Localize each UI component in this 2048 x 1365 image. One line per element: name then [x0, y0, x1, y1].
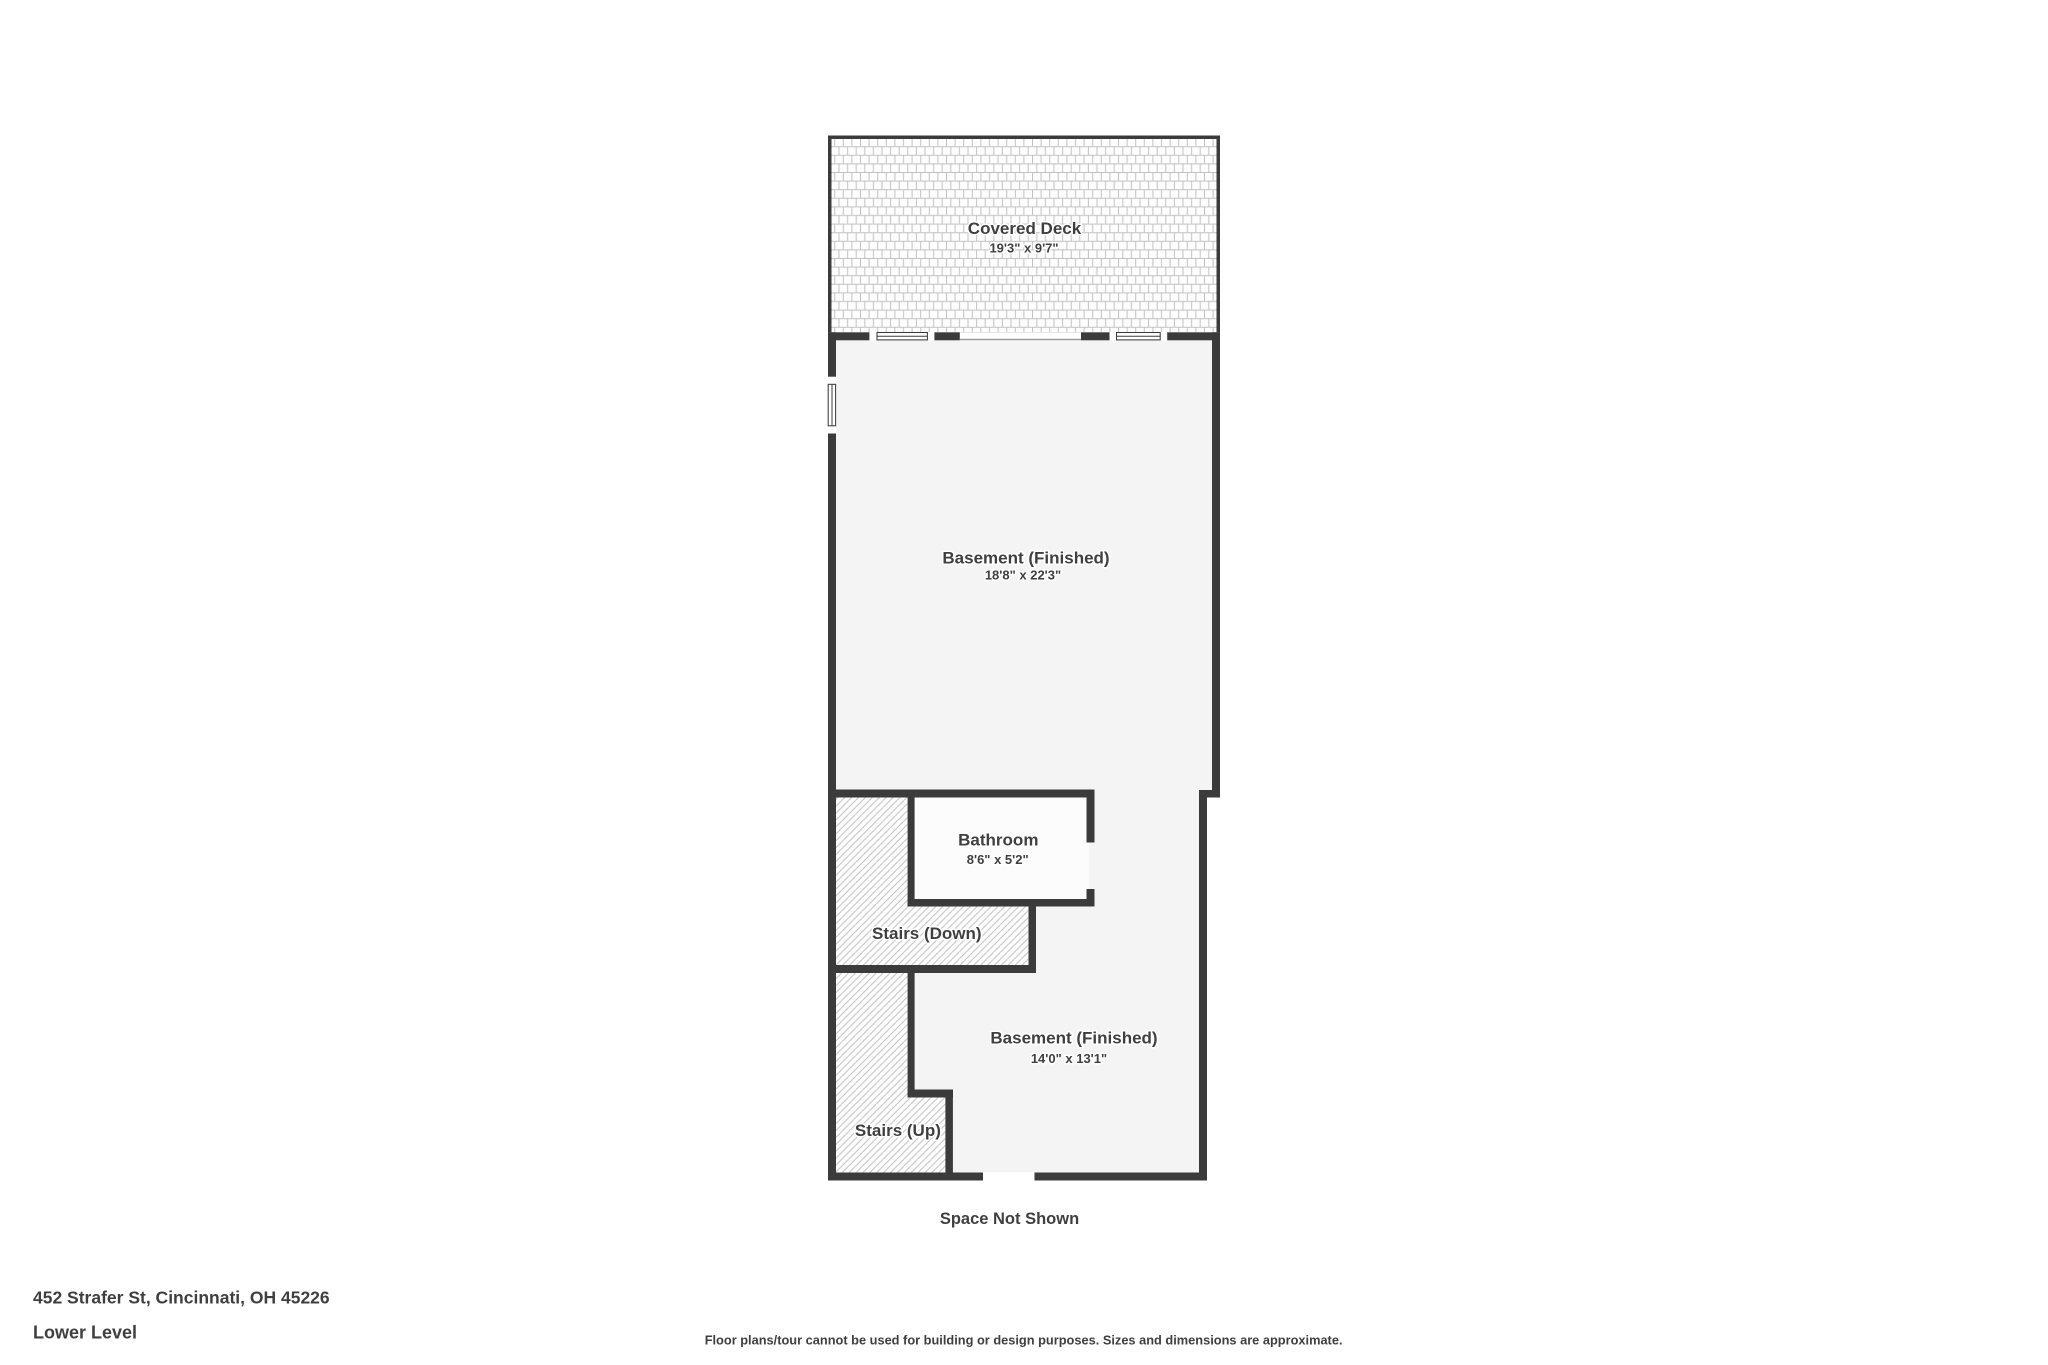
svg-text:14'0" x 13'1": 14'0" x 13'1": [1031, 1051, 1107, 1066]
svg-text:Stairs (Down): Stairs (Down): [872, 924, 982, 943]
svg-text:Stairs (Up): Stairs (Up): [855, 1121, 941, 1140]
svg-text:8'6" x 5'2": 8'6" x 5'2": [967, 852, 1029, 867]
svg-text:Bathroom: Bathroom: [958, 830, 1038, 849]
svg-text:Lower Level: Lower Level: [33, 1322, 137, 1342]
svg-text:452 Strafer St, Cincinnati, OH: 452 Strafer St, Cincinnati, OH 45226: [33, 1287, 330, 1307]
svg-text:Space Not Shown: Space Not Shown: [940, 1210, 1079, 1228]
svg-text:Basement (Finished): Basement (Finished): [990, 1028, 1157, 1047]
svg-text:Covered Deck: Covered Deck: [968, 219, 1082, 238]
svg-text:Basement (Finished): Basement (Finished): [942, 548, 1109, 567]
svg-text:Floor plans/tour cannot be use: Floor plans/tour cannot be used for buil…: [705, 1333, 1343, 1348]
svg-text:19'3" x 9'7": 19'3" x 9'7": [989, 241, 1058, 256]
svg-text:18'8" x 22'3": 18'8" x 22'3": [985, 567, 1061, 582]
